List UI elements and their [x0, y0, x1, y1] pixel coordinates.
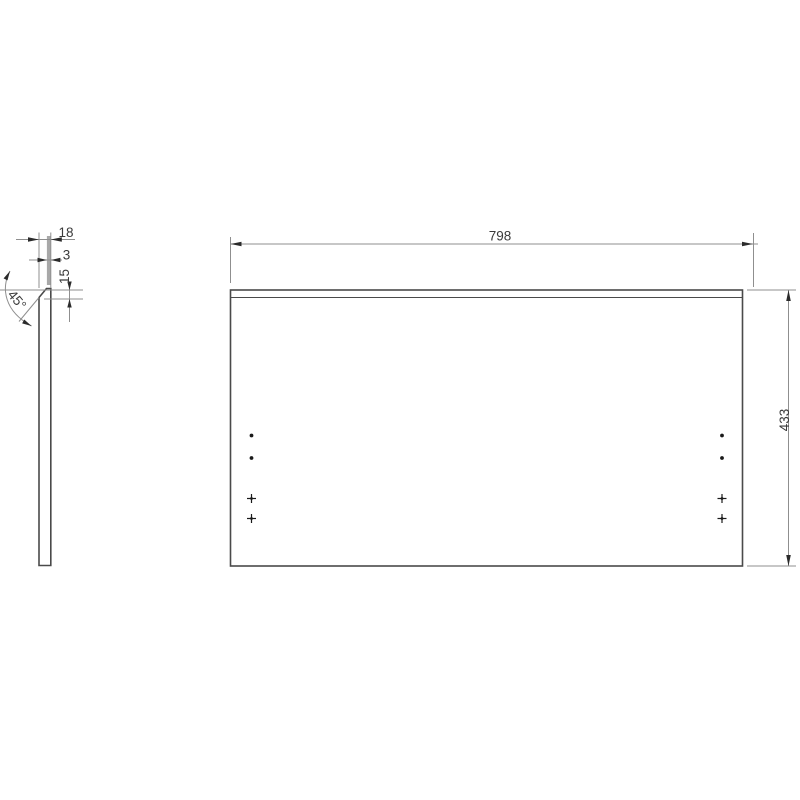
panel-technical-drawing: 18 3 15 45°: [0, 0, 800, 800]
arrowhead: [4, 270, 12, 280]
arrowhead: [22, 319, 32, 327]
front-view: [231, 290, 743, 566]
hole-dot: [250, 434, 254, 438]
dim-label-chamfer: 15: [57, 269, 72, 284]
arrowhead: [67, 299, 71, 308]
dim-label-width: 798: [489, 229, 512, 244]
hole-dot: [720, 434, 724, 438]
arrowhead: [231, 242, 242, 247]
dim-label-strip: 3: [63, 248, 71, 263]
arrowhead: [786, 290, 791, 301]
hole-dot: [250, 456, 254, 460]
arrowhead: [28, 237, 39, 242]
drawing-canvas: 18 3 15 45°: [0, 0, 800, 800]
panel-front-outline: [231, 290, 743, 566]
dim-height: 433: [747, 290, 796, 566]
hole-cross: [247, 514, 256, 523]
dim-label-angle: 45°: [5, 287, 30, 312]
dim-width: 798: [231, 229, 759, 288]
arrowhead: [38, 258, 48, 262]
hole-dot: [720, 456, 724, 460]
hole-cross: [718, 514, 727, 523]
side-view: [39, 236, 51, 566]
hole-cross: [718, 494, 727, 503]
panel-profile-outline: [39, 289, 51, 566]
hole-marks-left: [247, 434, 256, 523]
dim-label-height: 433: [777, 409, 792, 432]
arrowhead: [742, 242, 753, 247]
hole-cross: [247, 494, 256, 503]
arrowhead: [786, 555, 791, 566]
hole-marks-right: [718, 434, 727, 523]
arrowhead: [51, 258, 61, 262]
dim-label-thickness: 18: [58, 225, 73, 240]
dim-angle: 45°: [4, 270, 39, 328]
